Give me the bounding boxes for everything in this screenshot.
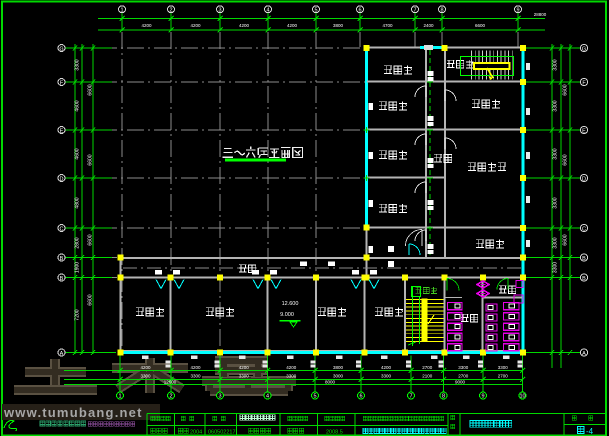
svg-text:1900: 1900 — [75, 262, 81, 273]
svg-text:4200: 4200 — [286, 365, 297, 370]
svg-text:3300: 3300 — [140, 374, 151, 379]
svg-text:1: 1 — [120, 8, 123, 14]
svg-text:B: B — [60, 276, 64, 282]
svg-text:28800: 28800 — [534, 12, 547, 17]
svg-text:D: D — [582, 176, 586, 182]
svg-text:3: 3 — [218, 394, 221, 400]
svg-text:8000: 8000 — [325, 380, 336, 385]
svg-text:3800: 3800 — [333, 365, 344, 370]
svg-text:2: 2 — [169, 394, 172, 400]
svg-text:3300: 3300 — [553, 262, 559, 273]
svg-text:4: 4 — [266, 394, 269, 400]
svg-text:3300: 3300 — [553, 237, 559, 248]
svg-text:9000: 9000 — [455, 380, 466, 385]
svg-text:2008.5: 2008.5 — [326, 430, 343, 436]
svg-text:D: D — [60, 176, 64, 182]
svg-text:-4: -4 — [586, 427, 594, 436]
svg-text:2700: 2700 — [498, 374, 509, 379]
svg-text:B: B — [60, 256, 64, 262]
svg-text:4200: 4200 — [190, 23, 201, 28]
svg-text:6600: 6600 — [563, 84, 569, 95]
svg-text:7: 7 — [409, 394, 412, 400]
svg-text:3300: 3300 — [239, 374, 250, 379]
svg-text:12600: 12600 — [164, 380, 177, 385]
svg-text:4200: 4200 — [381, 365, 392, 370]
svg-text:B: B — [582, 256, 586, 262]
svg-text:6600: 6600 — [88, 234, 94, 245]
svg-text:3: 3 — [218, 8, 221, 14]
svg-text:6600: 6600 — [88, 154, 94, 165]
svg-text:7200: 7200 — [75, 309, 81, 320]
svg-text:4200: 4200 — [190, 365, 201, 370]
svg-text:3300: 3300 — [286, 374, 297, 379]
svg-text:4600: 4600 — [75, 148, 81, 159]
svg-text:12.600: 12.600 — [282, 301, 299, 307]
svg-text:4600: 4600 — [75, 100, 81, 111]
svg-text:E: E — [60, 128, 64, 134]
svg-text:4700: 4700 — [382, 23, 393, 28]
svg-text:4200: 4200 — [140, 365, 151, 370]
svg-text:060502217: 060502217 — [208, 430, 236, 436]
svg-text:4200: 4200 — [239, 365, 250, 370]
svg-text:3300: 3300 — [553, 148, 559, 159]
svg-text:3300: 3300 — [553, 100, 559, 111]
svg-text:8: 8 — [440, 8, 443, 14]
svg-text:6: 6 — [359, 394, 362, 400]
svg-text:2800: 2800 — [75, 237, 81, 248]
svg-text:3300: 3300 — [498, 365, 509, 370]
svg-text:G: G — [582, 46, 586, 52]
svg-text:5: 5 — [314, 8, 317, 14]
svg-text:5: 5 — [313, 394, 316, 400]
svg-text:4800: 4800 — [75, 197, 81, 208]
svg-text:2004: 2004 — [190, 430, 202, 436]
svg-text:3300: 3300 — [75, 59, 81, 70]
svg-text:3000: 3000 — [333, 374, 344, 379]
svg-text:9.000: 9.000 — [280, 312, 294, 318]
svg-text:3300: 3300 — [381, 374, 392, 379]
svg-text:6600: 6600 — [475, 23, 486, 28]
svg-text:6600: 6600 — [563, 154, 569, 165]
svg-text:3300: 3300 — [190, 374, 201, 379]
svg-text:6600: 6600 — [88, 84, 94, 95]
svg-text:4200: 4200 — [239, 23, 250, 28]
svg-text:A: A — [582, 351, 586, 357]
svg-text:3300: 3300 — [553, 197, 559, 208]
svg-text:6: 6 — [358, 8, 361, 14]
svg-text:4200: 4200 — [141, 23, 152, 28]
svg-text:2700: 2700 — [458, 374, 469, 379]
svg-text:10: 10 — [519, 394, 525, 400]
svg-text:6600: 6600 — [88, 294, 94, 305]
svg-text:8: 8 — [442, 394, 445, 400]
svg-text:2: 2 — [169, 8, 172, 14]
svg-text:9: 9 — [516, 8, 519, 14]
svg-text:3800: 3800 — [333, 23, 344, 28]
svg-text:2400: 2400 — [423, 23, 434, 28]
svg-text:9: 9 — [481, 394, 484, 400]
svg-text:4200: 4200 — [287, 23, 298, 28]
svg-text:7: 7 — [413, 8, 416, 14]
svg-text:C: C — [582, 226, 586, 232]
svg-text:2700: 2700 — [422, 365, 433, 370]
svg-text:E: E — [582, 128, 586, 134]
svg-text:2100: 2100 — [422, 374, 433, 379]
svg-text:A: A — [60, 351, 64, 357]
svg-text:B: B — [582, 276, 586, 282]
svg-text:C: C — [60, 226, 64, 232]
svg-text:6600: 6600 — [563, 234, 569, 245]
svg-text:4: 4 — [266, 8, 269, 14]
svg-text:G: G — [59, 46, 63, 52]
svg-text:1: 1 — [118, 394, 121, 400]
svg-text:3300: 3300 — [553, 59, 559, 70]
svg-text:3300: 3300 — [458, 365, 469, 370]
svg-text:www.tumubang.net: www.tumubang.net — [3, 405, 143, 420]
